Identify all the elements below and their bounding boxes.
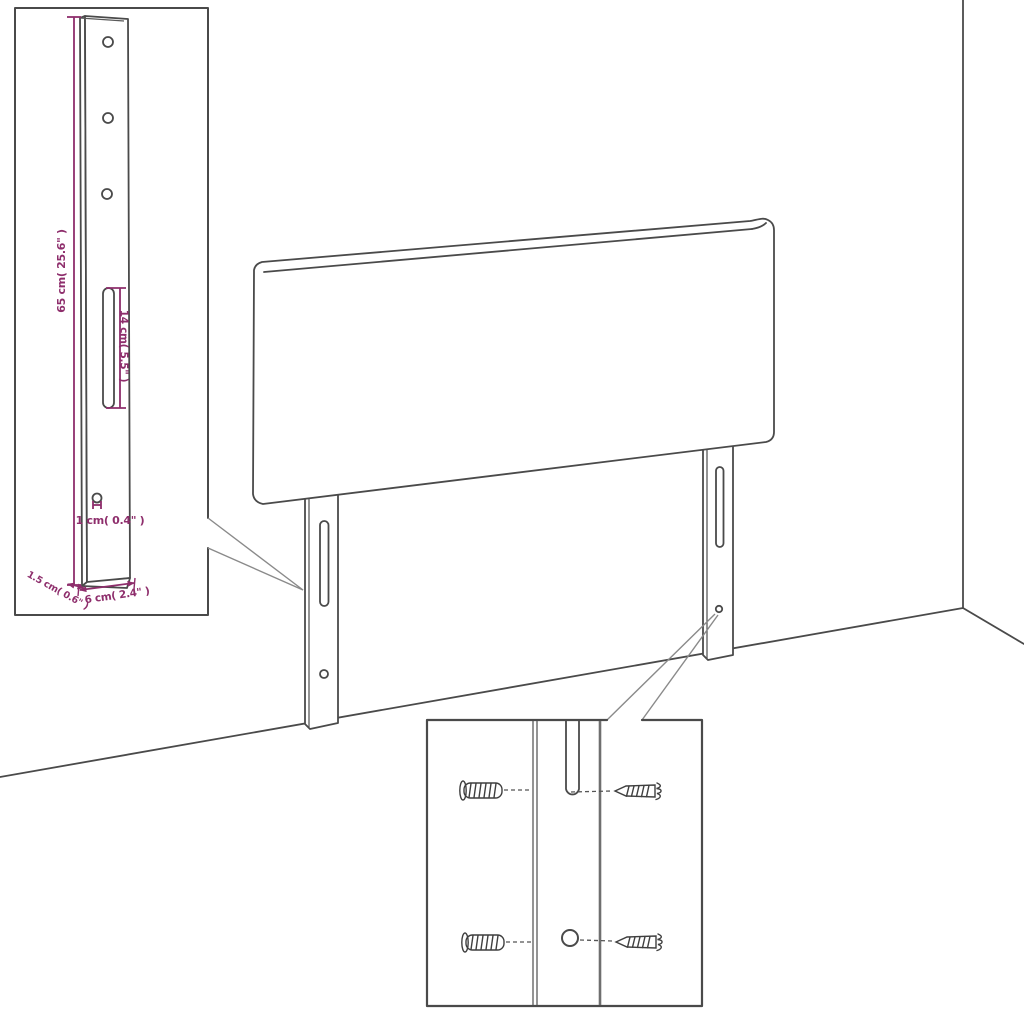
callout-line-lower-right [642, 615, 718, 720]
lower-screw-alignment-dashes [580, 940, 613, 941]
headboard-panel [253, 219, 774, 504]
headboard-assembly-diagram: 65 cm( 25.6" ) 14 cm( 5.5" ) 1 cm( 0.4" … [0, 0, 1024, 1024]
bracket-enlarged [80, 16, 130, 588]
floor-line-right [963, 608, 1024, 644]
left-mounting-leg [305, 480, 338, 729]
label-bracket-height: 65 cm( 25.6" ) [55, 229, 68, 313]
dimension-65cm [67, 17, 81, 585]
strip-hole [562, 930, 578, 946]
hardware-detail-box [427, 720, 702, 1006]
upper-wall-plug-icon [460, 781, 502, 800]
floor-line-left [0, 608, 963, 777]
leg-strip-enlarged [533, 721, 600, 1005]
headboard-outline [253, 219, 774, 504]
lower-screw-icon [616, 934, 662, 951]
right-mounting-leg [703, 438, 733, 660]
hardware-detail-inset [427, 720, 702, 1006]
label-slot-length: 14 cm( 5.5" ) [117, 310, 129, 383]
strip-slot [566, 721, 579, 794]
upper-screw-icon [615, 783, 661, 800]
lower-wall-plug-icon [462, 933, 504, 952]
label-hole-diameter: 1 cm( 0.4" ) [76, 514, 145, 527]
